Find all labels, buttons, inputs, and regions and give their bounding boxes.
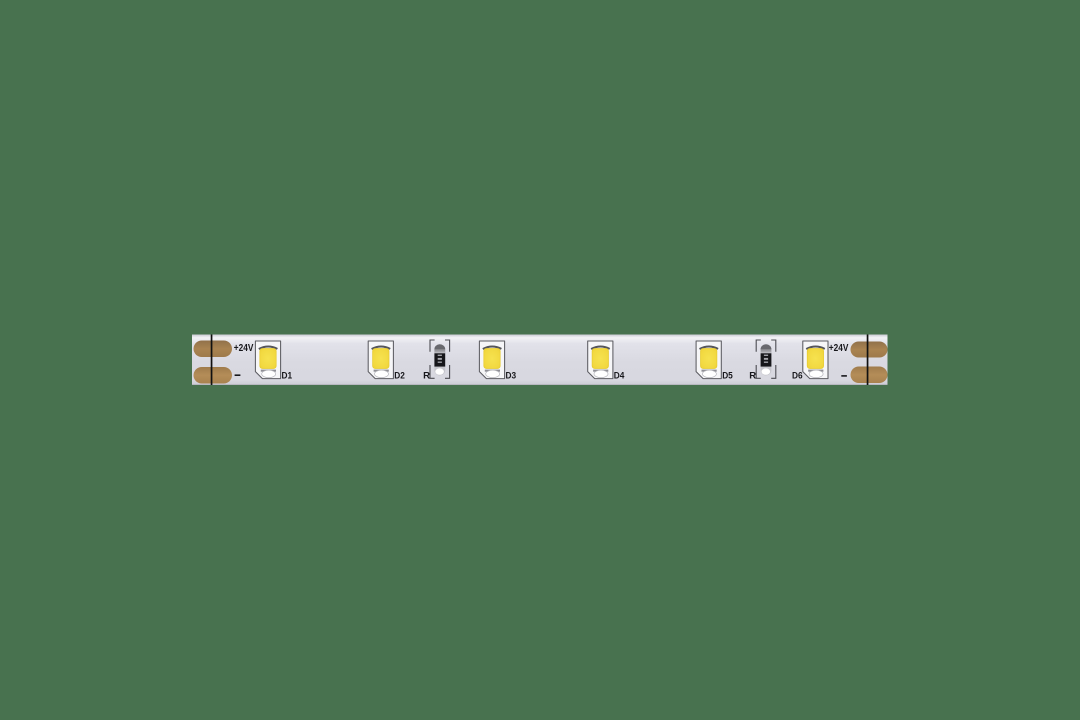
svg-text:D5: D5 bbox=[722, 371, 733, 382]
svg-text:D1: D1 bbox=[282, 371, 293, 382]
svg-text:R: R bbox=[749, 371, 756, 382]
svg-text:D2: D2 bbox=[394, 371, 405, 382]
svg-text:D3: D3 bbox=[506, 371, 517, 382]
svg-text:D6: D6 bbox=[792, 371, 803, 382]
svg-text:R: R bbox=[423, 371, 430, 382]
svg-text:+24V: +24V bbox=[829, 343, 849, 354]
svg-text:+24V: +24V bbox=[234, 343, 254, 354]
svg-text:D4: D4 bbox=[614, 371, 625, 382]
